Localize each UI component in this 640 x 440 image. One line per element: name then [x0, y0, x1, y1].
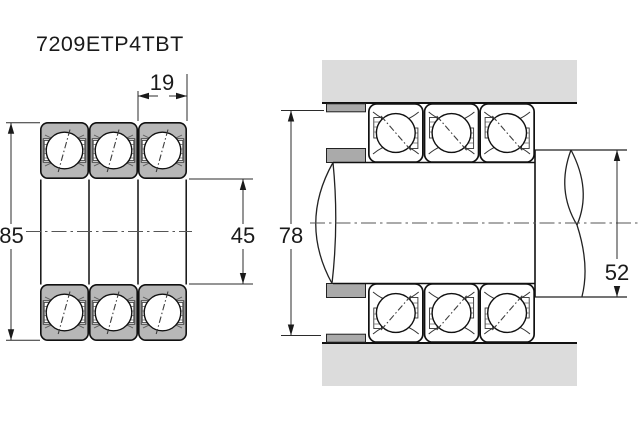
arrowhead-up [8, 123, 14, 134]
dimension-bore-45: 45 [189, 179, 257, 284]
left-bearing-section-view [26, 123, 192, 340]
arrowhead-down [8, 329, 14, 340]
dim-shoulder-label: 52 [605, 260, 629, 285]
housing-top-half [322, 60, 577, 163]
arrowhead-down [614, 286, 620, 297]
drawing-canvas: 19 85 45 78 52 7209ETP4TBT [0, 0, 640, 440]
arrowhead-up [240, 179, 246, 190]
bearing-technical-drawing: 19 85 45 78 52 7209ETP4TBT [0, 0, 640, 440]
dim-housing-label: 78 [279, 223, 303, 248]
arrowhead-up [288, 111, 294, 122]
dim-width-label: 19 [150, 70, 174, 95]
part-number-title: 7209ETP4TBT [36, 32, 184, 56]
arrowhead-up [614, 150, 620, 161]
dim-bore-label: 45 [231, 223, 255, 248]
housing-bottom-half [322, 284, 577, 387]
arrowhead-left [138, 93, 149, 99]
right-mounted-view [310, 60, 638, 386]
arrowhead-down [240, 273, 246, 284]
bearing-row-top [41, 123, 186, 178]
shaft [310, 150, 638, 297]
dimension-width-19: 19 [138, 70, 187, 121]
arrowhead-down [288, 325, 294, 336]
bearing-row-bottom [41, 285, 186, 340]
arrowhead-right [176, 93, 187, 99]
shaft-break-right [565, 150, 577, 225]
dim-outer-label: 85 [0, 223, 24, 248]
